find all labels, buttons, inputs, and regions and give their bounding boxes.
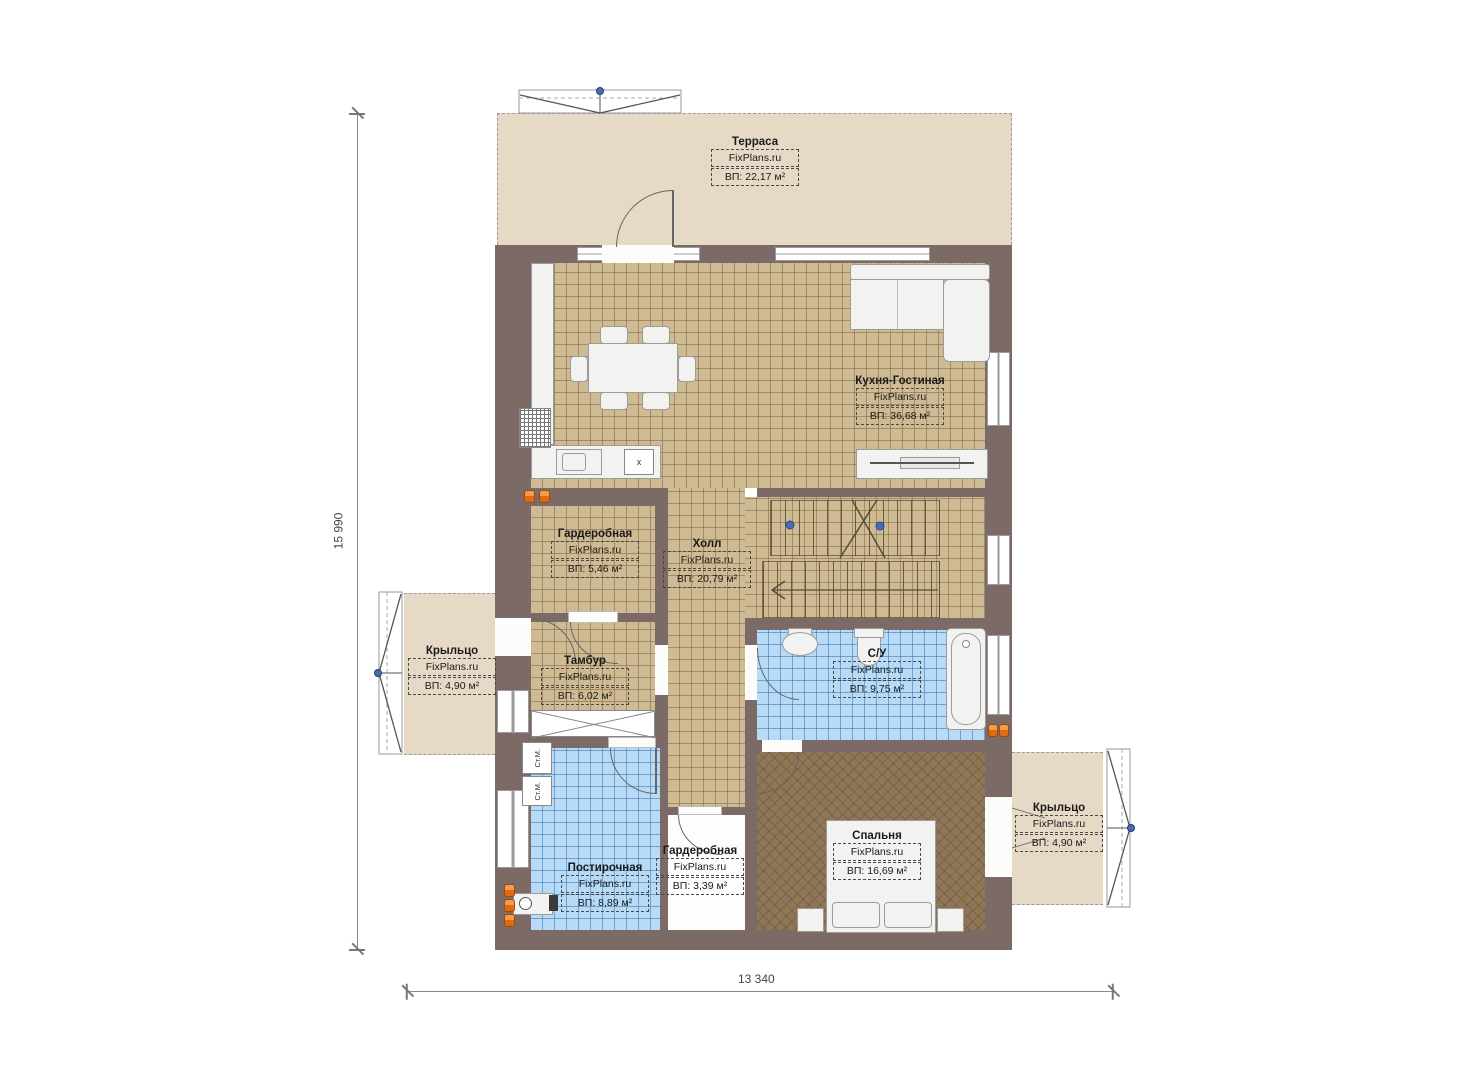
- radiator: [524, 490, 535, 503]
- dimension-line-horizontal: [407, 991, 1113, 992]
- watermark: FixPlans.ru: [551, 541, 639, 559]
- dimension-height-label: 15 990: [331, 513, 345, 550]
- dining-table: [588, 343, 678, 393]
- bathroom-sink: [782, 632, 818, 656]
- door-leaf: [655, 748, 657, 794]
- room-area: ВП: 6,02 м²: [541, 687, 629, 705]
- pillow: [884, 902, 932, 928]
- dimension-line-vertical: [357, 113, 358, 950]
- window: [987, 352, 1010, 426]
- room-label-porch-right: Крыльцо FixPlans.ru ВП: 4,90 м²: [1004, 802, 1114, 852]
- chair: [642, 326, 670, 344]
- watermark: FixPlans.ru: [541, 668, 629, 686]
- washing-machine-label: Ст.М.: [533, 749, 542, 767]
- radiator: [504, 914, 515, 927]
- stove: x: [624, 449, 654, 475]
- room-area: ВП: 36,68 м²: [856, 407, 944, 425]
- room-label-wardrobe-1: Гардеробная FixPlans.ru ВП: 5,46 м²: [540, 528, 650, 578]
- chair: [600, 392, 628, 410]
- room-area: ВП: 4,90 м²: [408, 677, 496, 695]
- watermark: FixPlans.ru: [833, 661, 921, 679]
- wall-segment: [495, 930, 1012, 950]
- watermark: FixPlans.ru: [408, 658, 496, 676]
- room-name: Крыльцо: [1033, 802, 1085, 814]
- chair: [642, 392, 670, 410]
- door-opening-vestibule-hall: [655, 645, 668, 695]
- room-name: Кухня-Гостиная: [855, 375, 944, 387]
- door-opening-bedroom: [762, 740, 802, 752]
- tv-line: [870, 462, 974, 464]
- room-label-wardrobe-2: Гардеробная FixPlans.ru ВП: 3,39 м²: [645, 845, 755, 895]
- watermark: FixPlans.ru: [833, 843, 921, 861]
- chair: [570, 356, 588, 382]
- chair: [600, 326, 628, 344]
- dimension-width-label: 13 340: [738, 972, 775, 986]
- bathtub-drain: [962, 640, 970, 648]
- room-name: Терраса: [732, 136, 778, 148]
- door-opening-laundry: [608, 737, 656, 748]
- sofa-back: [850, 264, 990, 280]
- watermark: FixPlans.ru: [663, 551, 751, 569]
- kitchen-sink-basin: [562, 453, 586, 471]
- room-label-laundry: Постирочная FixPlans.ru ВП: 8,89 м²: [550, 862, 660, 912]
- wall-segment: [495, 488, 668, 506]
- watermark: FixPlans.ru: [856, 388, 944, 406]
- window: [987, 635, 1010, 715]
- pillow: [832, 902, 880, 928]
- room-area: ВП: 3,39 м²: [656, 877, 744, 895]
- watermark: FixPlans.ru: [711, 149, 799, 167]
- room-label-bedroom: Спальня FixPlans.ru ВП: 16,69 м²: [822, 830, 932, 880]
- room-name: Постирочная: [568, 862, 643, 874]
- window: [775, 247, 930, 261]
- door-opening-terrace: [602, 245, 674, 263]
- door-leaf: [672, 190, 674, 247]
- window: [987, 535, 1010, 585]
- sofa-chaise: [943, 279, 990, 362]
- room-name: Тамбур: [564, 655, 606, 667]
- room-label-hall: Холл FixPlans.ru ВП: 20,79 м²: [652, 538, 762, 588]
- wall-segment: [495, 245, 1012, 263]
- window-symbol-top: [518, 86, 682, 118]
- cabinet-cross-lines: [532, 711, 656, 738]
- sofa-seam: [897, 280, 898, 329]
- room-area: ВП: 5,46 м²: [551, 560, 639, 578]
- door-opening-bathroom: [745, 645, 757, 700]
- room-label-bathroom: С/У FixPlans.ru ВП: 9,75 м²: [822, 648, 932, 698]
- washing-machine-2: Ст.М.: [522, 776, 552, 806]
- nightstand: [797, 908, 824, 932]
- room-name: Холл: [693, 538, 722, 550]
- room-name: Гардеробная: [558, 528, 632, 540]
- watermark: FixPlans.ru: [1015, 815, 1103, 833]
- washing-machine-label: Ст.М.: [533, 782, 542, 800]
- watermark: FixPlans.ru: [656, 858, 744, 876]
- washing-machine-1: Ст.М.: [522, 742, 552, 774]
- room-name: Гардеробная: [663, 845, 737, 857]
- watermark: FixPlans.ru: [561, 875, 649, 893]
- kitchen-appliance-block: [519, 408, 551, 448]
- laundry-unit-door: [519, 897, 532, 910]
- room-area: ВП: 22,17 м²: [711, 168, 799, 186]
- floor-plan: 15 990 13 340: [0, 0, 1474, 1080]
- radiator: [539, 490, 550, 503]
- room-name: С/У: [868, 648, 887, 660]
- room-name: Крыльцо: [426, 645, 478, 657]
- vestibule-cabinet: [531, 710, 655, 737]
- radiator: [999, 724, 1009, 737]
- wall-segment: [757, 488, 985, 497]
- chair: [678, 356, 696, 382]
- window: [497, 690, 529, 733]
- radiator: [988, 724, 998, 737]
- nightstand: [937, 908, 964, 932]
- room-area: ВП: 9,75 м²: [833, 680, 921, 698]
- stairs-direction-marks: [757, 497, 985, 618]
- room-area: ВП: 8,89 м²: [561, 894, 649, 912]
- room-area: ВП: 20,79 м²: [663, 570, 751, 588]
- room-label-vestibule: Тамбур FixPlans.ru ВП: 6,02 м²: [530, 655, 640, 705]
- stove-symbol: x: [637, 457, 642, 467]
- room-area: ВП: 4,90 м²: [1015, 834, 1103, 852]
- room-label-porch-left: Крыльцо FixPlans.ru ВП: 4,90 м²: [397, 645, 507, 695]
- wall-segment: [660, 748, 668, 930]
- room-area: ВП: 16,69 м²: [833, 862, 921, 880]
- room-label-terrace: Терраса FixPlans.ru ВП: 22,17 м²: [700, 136, 810, 186]
- door-opening-wardrobe-2: [678, 806, 722, 815]
- room-name: Спальня: [852, 830, 902, 842]
- radiator: [504, 884, 515, 897]
- radiator: [504, 899, 515, 912]
- room-label-kitchen-living: Кухня-Гостиная FixPlans.ru ВП: 36,68 м²: [845, 375, 955, 425]
